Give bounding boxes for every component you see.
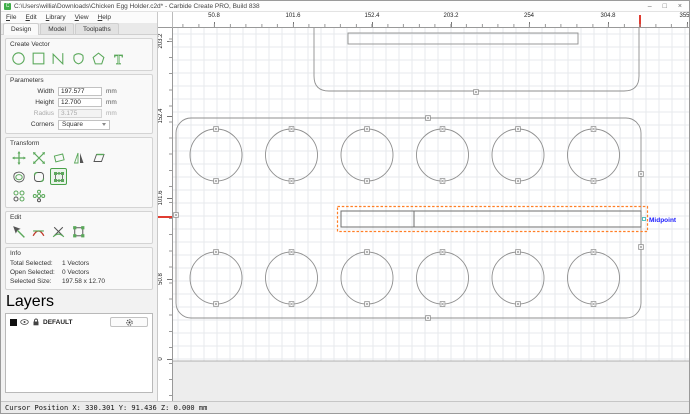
horizontal-ruler: 50.8101.6152.4203.2254304.8355.6: [173, 12, 690, 28]
midpoint-marker[interactable]: [643, 218, 646, 221]
create-vector-label: Create Vector: [10, 41, 148, 48]
trim-tool-icon[interactable]: [30, 223, 47, 240]
join-tool-icon[interactable]: [70, 223, 87, 240]
rectangle-tool-icon[interactable]: [30, 50, 47, 67]
radius-field: 3.175: [58, 109, 102, 118]
selection-highlight[interactable]: [338, 207, 648, 232]
height-label: Height: [10, 99, 58, 106]
menu-bar: File Edit Library View Help: [1, 12, 157, 23]
info-group: Info Total Selected: 1 Vectors Open Sele…: [5, 247, 153, 290]
egg-hole-circle[interactable]: [190, 129, 242, 181]
egg-hole-circle[interactable]: [341, 129, 393, 181]
fillet-tool-icon[interactable]: [30, 168, 47, 185]
menu-file[interactable]: File: [6, 14, 17, 21]
circular-array-tool-icon[interactable]: [30, 187, 47, 204]
h-ruler-label: 203.2: [443, 13, 458, 19]
holder-outline-vector[interactable]: [176, 118, 641, 318]
selected-size-label: Selected Size:: [10, 278, 62, 285]
edit-handles-tool-icon[interactable]: [50, 168, 67, 185]
circle-tool-icon[interactable]: [10, 50, 27, 67]
create-vector-group: Create Vector T: [5, 38, 153, 71]
text-tool-icon[interactable]: T: [110, 50, 127, 67]
ruler-corner: [158, 12, 173, 28]
open-selected-label: Open Selected:: [10, 269, 62, 276]
h-ruler-label: 355.6: [679, 13, 690, 19]
total-selected-label: Total Selected:: [10, 260, 62, 267]
height-unit: mm: [102, 99, 117, 106]
width-unit: mm: [102, 88, 117, 95]
edit-group: Edit: [5, 211, 153, 244]
selected-size-value: 197.58 x 12.70: [62, 278, 105, 285]
top-notch-vector[interactable]: [348, 33, 578, 44]
maximize-button[interactable]: □: [663, 2, 667, 11]
drawing-canvas[interactable]: Midpoint: [173, 28, 690, 401]
egg-hole-circle[interactable]: [266, 252, 318, 304]
window-title: C:\Users\willia\Downloads\Chicken Egg Ho…: [14, 3, 648, 10]
move-tool-icon[interactable]: [10, 149, 27, 166]
edit-label: Edit: [10, 214, 148, 221]
parameters-label: Parameters: [10, 77, 148, 84]
v-ruler-label: 152.4: [158, 99, 164, 133]
corners-select[interactable]: Square: [58, 120, 110, 130]
menu-edit[interactable]: Edit: [26, 14, 37, 21]
h-ruler-label: 304.8: [600, 13, 615, 19]
h-ruler-label: 50.8: [208, 13, 220, 19]
midpoint-tooltip: Midpoint: [649, 217, 677, 224]
egg-hole-circle[interactable]: [417, 129, 469, 181]
radius-label: Radius: [10, 110, 58, 117]
eye-icon[interactable]: [20, 313, 29, 331]
egg-hole-circle[interactable]: [266, 129, 318, 181]
vector-canvas[interactable]: Midpoint: [173, 28, 690, 401]
gear-icon: [125, 318, 134, 327]
parameters-group: Parameters Width mm Height mm Radius 3.1…: [5, 74, 153, 134]
minimize-button[interactable]: –: [648, 2, 652, 11]
svg-text:T: T: [114, 53, 123, 66]
corners-label: Corners: [10, 121, 58, 128]
linear-array-tool-icon[interactable]: [10, 187, 27, 204]
width-label: Width: [10, 88, 58, 95]
off-stock-region[interactable]: [173, 361, 690, 401]
node-edit-tool-icon[interactable]: [10, 223, 27, 240]
egg-hole-circle[interactable]: [417, 252, 469, 304]
h-ruler-label: 101.6: [285, 13, 300, 19]
height-field[interactable]: [58, 98, 102, 107]
split-tool-icon[interactable]: [50, 223, 67, 240]
layers-section: Layers DEFAULT: [5, 293, 153, 393]
transform-group: Transform: [5, 137, 153, 208]
polygon-tool-icon[interactable]: [90, 50, 107, 67]
mirror-tool-icon[interactable]: [70, 149, 87, 166]
left-panel: File Edit Library View Help Design Model…: [1, 12, 158, 401]
v-ruler-label: 50.8: [158, 262, 164, 296]
open-selected-value: 0 Vectors: [62, 269, 89, 276]
tab-toolpaths[interactable]: Toolpaths: [75, 23, 119, 34]
vertical-ruler: 203.2152.4101.650.80: [158, 28, 173, 401]
v-ruler-label: 101.6: [158, 181, 164, 215]
corners-value: Square: [62, 121, 83, 128]
cursor-x-indicator: [639, 15, 641, 27]
close-button[interactable]: ×: [678, 2, 682, 11]
egg-hole-circle[interactable]: [341, 252, 393, 304]
egg-hole-circle[interactable]: [190, 252, 242, 304]
curve-tool-icon[interactable]: [70, 50, 87, 67]
info-label: Info: [10, 250, 148, 257]
polyline-tool-icon[interactable]: [50, 50, 67, 67]
tab-model[interactable]: Model: [40, 23, 74, 34]
status-bar: Cursor Position X: 330.301 Y: 91.436 Z: …: [1, 401, 689, 414]
rotate-tool-icon[interactable]: [50, 149, 67, 166]
egg-hole-circle[interactable]: [492, 129, 544, 181]
cursor-y-indicator: [158, 216, 172, 218]
radius-unit: mm: [102, 110, 117, 117]
layer-settings-button[interactable]: [110, 317, 148, 327]
title-bar: C C:\Users\willia\Downloads\Chicken Egg …: [1, 1, 689, 12]
v-ruler-label: 203.2: [158, 28, 164, 58]
lock-icon[interactable]: [32, 313, 40, 331]
scale-tool-icon[interactable]: [30, 149, 47, 166]
v-ruler-label: 0: [158, 342, 164, 376]
canvas-area: 50.8101.6152.4203.2254304.8355.6 203.215…: [158, 12, 690, 401]
app-logo-icon: C: [4, 3, 11, 10]
h-ruler-label: 152.4: [364, 13, 379, 19]
total-selected-value: 1 Vectors: [62, 260, 89, 267]
h-ruler-label: 254: [524, 13, 534, 19]
layers-label: Layers: [6, 293, 153, 311]
layer-color-swatch[interactable]: [10, 319, 17, 326]
width-field[interactable]: [58, 87, 102, 96]
egg-hole-circle[interactable]: [492, 252, 544, 304]
menu-view[interactable]: View: [75, 14, 89, 21]
tab-design[interactable]: Design: [3, 23, 39, 35]
design-panel: Create Vector T: [1, 35, 157, 401]
layer-name: DEFAULT: [43, 319, 107, 326]
menu-library[interactable]: Library: [46, 14, 66, 21]
menu-help[interactable]: Help: [98, 14, 111, 21]
skew-tool-icon[interactable]: [90, 149, 107, 166]
transform-label: Transform: [10, 140, 148, 147]
app-window: C C:\Users\willia\Downloads\Chicken Egg …: [0, 0, 690, 414]
chevron-down-icon: [102, 123, 106, 126]
layer-row-default[interactable]: DEFAULT: [8, 316, 150, 328]
layers-list: DEFAULT: [5, 313, 153, 393]
offset-tool-icon[interactable]: [10, 168, 27, 185]
mode-tabs: Design Model Toolpaths: [1, 23, 157, 35]
